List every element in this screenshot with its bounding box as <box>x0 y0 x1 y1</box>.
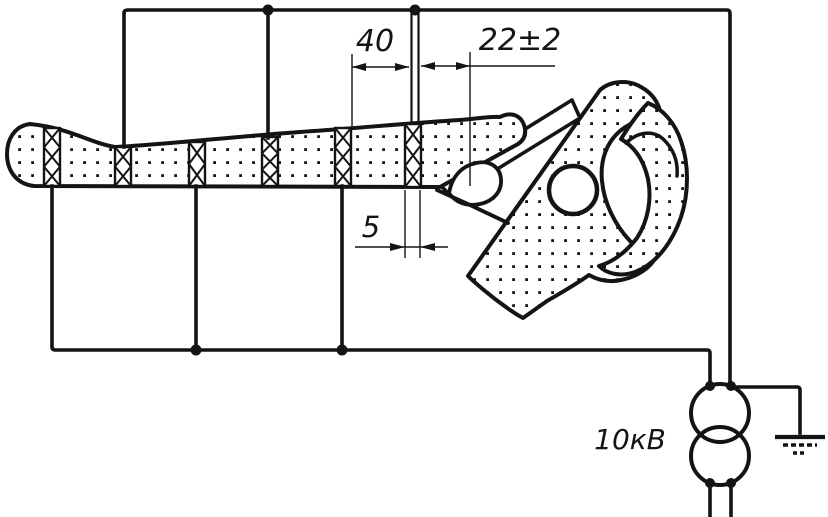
hv-transformer-symbol <box>691 384 749 485</box>
dimension-5: 5 <box>355 190 448 258</box>
dim-40-label: 40 <box>356 24 394 59</box>
hv-double-lead <box>412 10 419 124</box>
pivot-hole <box>549 166 597 214</box>
dim-5-label: 5 <box>362 210 380 244</box>
dimension-40: 40 <box>352 24 409 130</box>
test-circuit-diagram: 40 22±2 5 10кВ <box>0 0 828 517</box>
dim-22-label: 22±2 <box>479 23 561 58</box>
diagram-canvas: 40 22±2 5 10кВ <box>0 0 828 517</box>
transformer-bottom-leads <box>710 484 731 517</box>
circuit-wiring <box>52 5 800 517</box>
voltage-label: 10кВ <box>594 423 666 456</box>
pliers-tool <box>7 82 687 318</box>
earth-ground-icon <box>775 437 825 453</box>
